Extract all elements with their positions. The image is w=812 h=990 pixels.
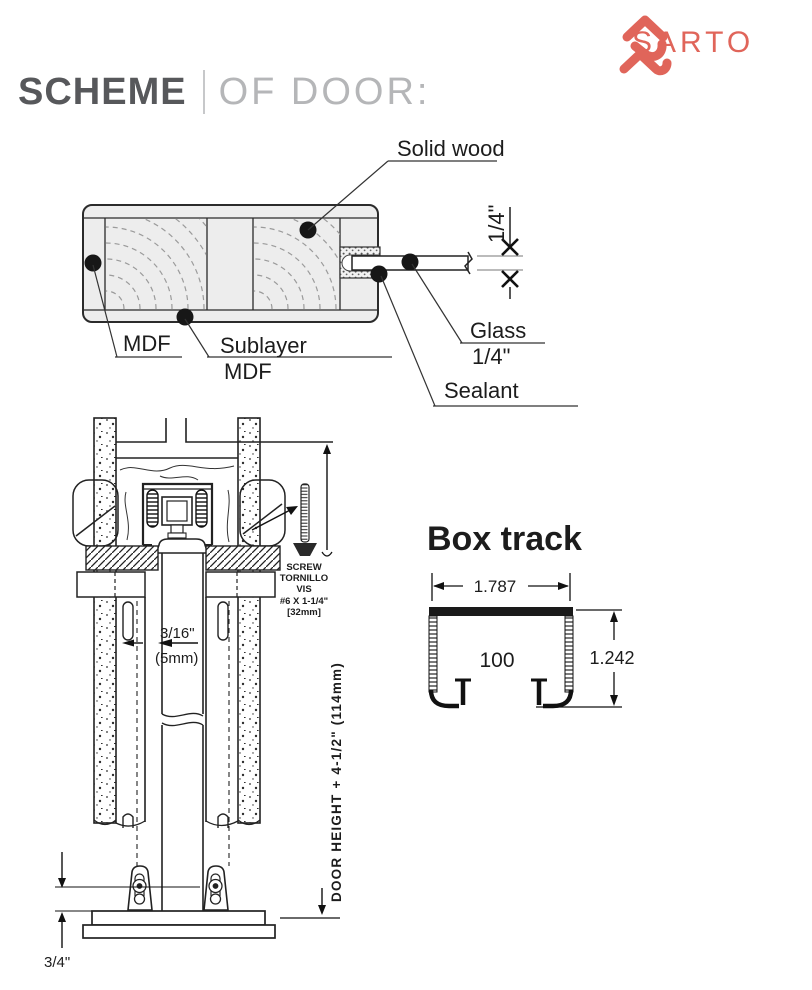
door-height-dimension: DOOR HEIGHT + 4-1/2" (114mm) [280,444,344,918]
track-and-carriage [143,484,212,553]
gap-label-1: 3/16" [160,625,195,642]
base-plates [83,911,275,938]
glass-thickness-label: 1/4" [484,205,509,243]
page-title-primary: SCHEME [18,71,187,114]
roller-left [147,490,158,527]
label-glass-1: Glass [470,318,526,343]
track-height-dimension: 1.242 [536,610,635,707]
screw-head [293,543,317,556]
screw-label-3: VIS [296,584,311,595]
door-slab-section: 1/4" [83,179,523,322]
floor-clearance-label: 3/4" [44,954,70,971]
track-profile: 100 [429,607,573,706]
gap-label-2: (5mm) [155,650,198,667]
label-sublayer-2: MDF [224,359,272,384]
door-cross-section-diagram: 1/4" Solid wood MDF Sublayer MDF Glass 1… [0,125,620,415]
label-sealant: Sealant [444,378,519,403]
roller-right [196,490,207,527]
door-height-label: DOOR HEIGHT + 4-1/2" (114mm) [329,662,344,902]
sarto-logo-icon [616,8,674,76]
page-title: SCHEME OF DOOR: [18,70,430,114]
label-solid-wood: Solid wood [397,136,505,161]
door-panel [162,553,203,911]
ceiling-lines [116,418,333,458]
label-sublayer-1: Sublayer [220,333,307,358]
jamb-casings [77,572,275,597]
page: SARTO SCHEME OF DOOR: [0,0,812,990]
track-width-dimension: 1.787 [432,573,570,601]
floor-guides [128,866,228,910]
label-mdf: MDF [123,331,171,356]
heading-divider [203,70,205,114]
page-title-secondary: OF DOOR: [219,71,431,114]
track-height-value: 1.242 [589,648,634,668]
wall-studs [94,418,260,823]
screw-label-4: #6 X 1-1/4" [280,596,328,607]
sliding-mechanism-diagram: 3/16" (5mm) SCREW TORNILLO VIS #6 X 1-1/… [30,400,390,990]
door-top-bracket [156,539,208,553]
track-width-value: 1.787 [474,577,517,596]
box-track-title: Box track [427,520,582,558]
dimension-cross-bottom [502,271,518,287]
screw-label-5: [32mm] [287,607,321,618]
screw-label-1: SCREW [286,562,321,573]
track-model-number: 100 [479,649,514,672]
screw-label-2: TORNILLO [280,573,328,584]
brand-block: SARTO [616,8,754,60]
box-track-diagram: Box track 1.787 100 [405,500,665,730]
label-glass-2: 1/4" [472,344,510,369]
